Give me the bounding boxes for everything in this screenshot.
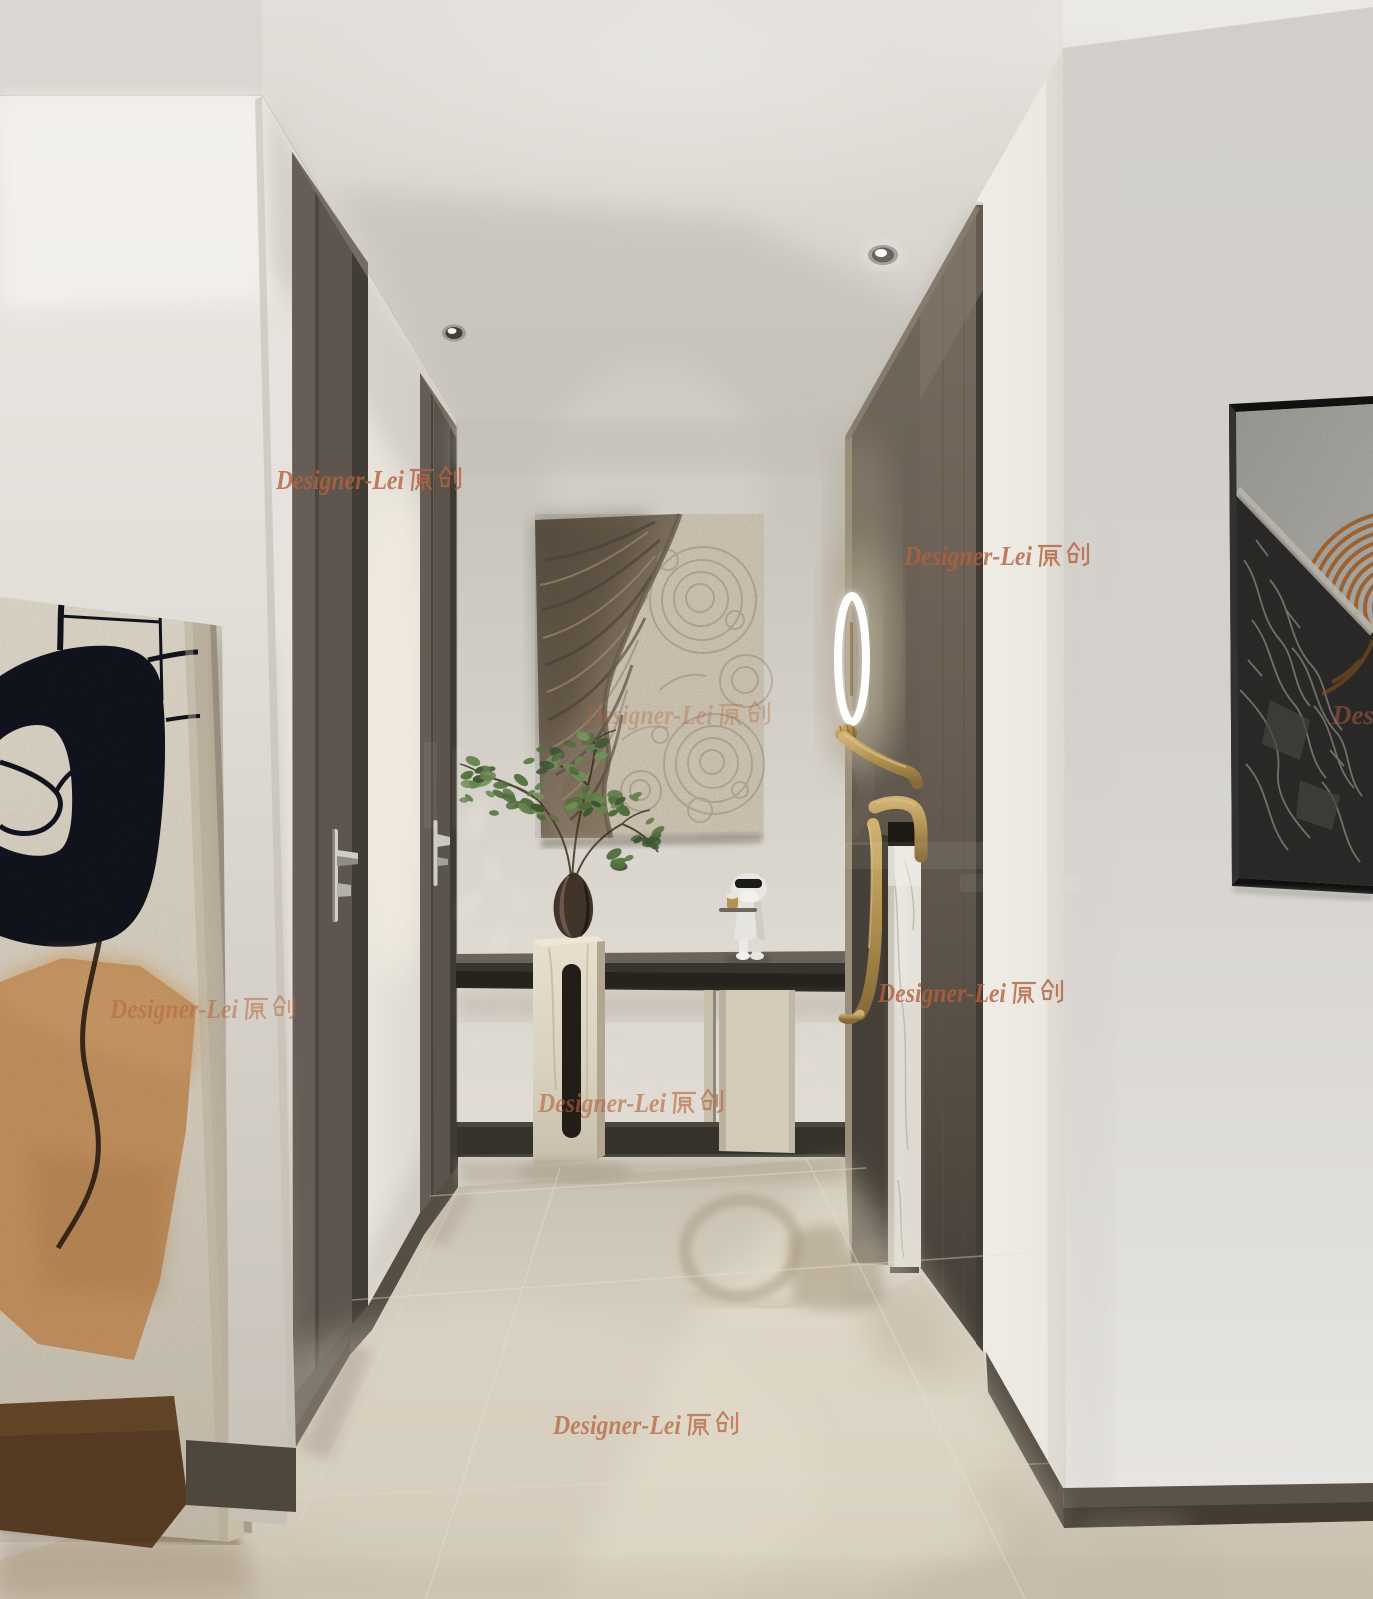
svg-text:Designer-Lei: Designer-Lei: [537, 1088, 666, 1118]
svg-text:Designer-Lei: Designer-Lei: [584, 700, 713, 730]
svg-text:Designer-Lei: Designer-Lei: [109, 994, 238, 1024]
svg-text:Designer: Designer: [1331, 700, 1373, 730]
svg-text:Designer-Lei: Designer-Lei: [275, 465, 404, 495]
svg-text:Designer-Lei: Designer-Lei: [877, 978, 1006, 1008]
svg-text:Designer-Lei: Designer-Lei: [903, 541, 1032, 571]
svg-text:Designer-Lei: Designer-Lei: [552, 1410, 681, 1440]
